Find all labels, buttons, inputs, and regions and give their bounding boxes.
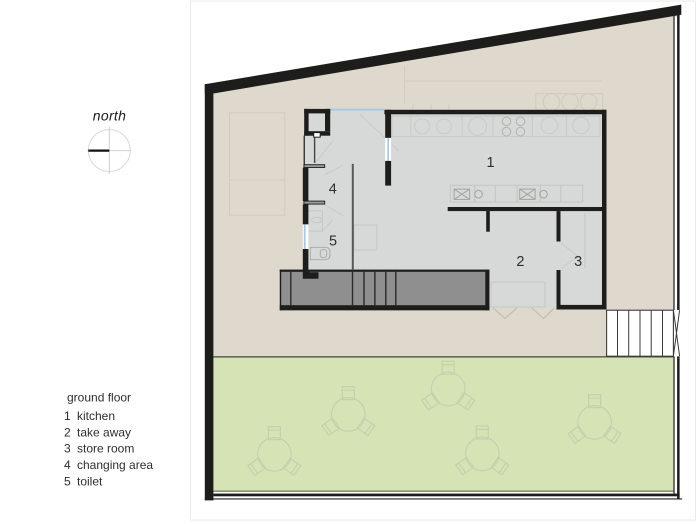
- svg-text:1: 1: [486, 155, 494, 171]
- svg-text:5: 5: [329, 233, 337, 249]
- svg-text:take away: take away: [77, 425, 131, 439]
- svg-text:3: 3: [64, 442, 71, 456]
- svg-text:north: north: [93, 108, 126, 124]
- svg-text:kitchen: kitchen: [77, 409, 115, 423]
- svg-text:changing area: changing area: [77, 458, 153, 472]
- svg-text:1: 1: [64, 409, 71, 423]
- svg-text:store room: store room: [77, 442, 134, 456]
- svg-text:2: 2: [516, 254, 524, 270]
- svg-text:2: 2: [64, 425, 71, 439]
- svg-text:4: 4: [64, 458, 71, 472]
- svg-text:4: 4: [329, 181, 337, 197]
- svg-text:5: 5: [64, 474, 71, 488]
- svg-text:ground floor: ground floor: [67, 391, 131, 405]
- svg-text:toilet: toilet: [77, 474, 103, 488]
- svg-text:3: 3: [574, 254, 582, 270]
